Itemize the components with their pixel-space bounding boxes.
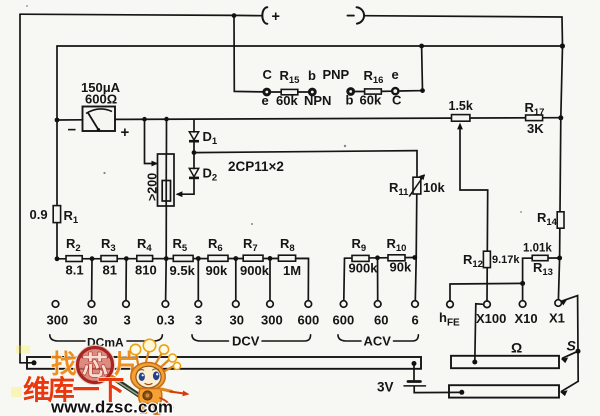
svg-text:R6: R6 bbox=[208, 236, 223, 254]
svg-text:60k: 60k bbox=[276, 93, 298, 108]
svg-text:900k: 900k bbox=[240, 263, 270, 278]
svg-text:R14: R14 bbox=[537, 210, 558, 228]
svg-text:X1: X1 bbox=[549, 311, 565, 326]
svg-text:D2: D2 bbox=[203, 166, 218, 184]
svg-text:1.5k: 1.5k bbox=[449, 99, 473, 113]
svg-text:60: 60 bbox=[374, 313, 388, 328]
svg-text:8.1: 8.1 bbox=[66, 263, 84, 278]
svg-text:hFE: hFE bbox=[439, 310, 460, 329]
svg-text:PNP: PNP bbox=[323, 67, 350, 82]
svg-text:30: 30 bbox=[83, 313, 97, 328]
svg-text:R1: R1 bbox=[64, 208, 79, 226]
svg-text:3V: 3V bbox=[377, 380, 394, 395]
svg-text:X100: X100 bbox=[476, 311, 506, 326]
svg-text:+: + bbox=[121, 124, 130, 141]
svg-text:810: 810 bbox=[135, 263, 157, 278]
svg-text:0.9: 0.9 bbox=[30, 207, 48, 222]
svg-text:R13: R13 bbox=[533, 260, 553, 278]
svg-text:D1: D1 bbox=[203, 129, 218, 147]
svg-text:1M: 1M bbox=[283, 263, 301, 278]
svg-text:81: 81 bbox=[103, 263, 117, 278]
svg-text:R9: R9 bbox=[352, 236, 367, 254]
svg-text:www.dzsc.com: www.dzsc.com bbox=[50, 398, 173, 416]
svg-text:b: b bbox=[346, 93, 354, 108]
svg-text:0.3: 0.3 bbox=[157, 313, 175, 328]
svg-text:+: + bbox=[272, 9, 280, 25]
svg-text:R7: R7 bbox=[243, 236, 258, 254]
svg-text:3: 3 bbox=[124, 313, 131, 328]
svg-text:30: 30 bbox=[230, 313, 244, 328]
svg-text:C: C bbox=[392, 93, 402, 108]
svg-text:e: e bbox=[262, 93, 269, 108]
svg-text:600: 600 bbox=[298, 313, 320, 328]
svg-text:NPN: NPN bbox=[304, 93, 331, 108]
svg-text:R2: R2 bbox=[66, 236, 81, 254]
svg-text:9.17k: 9.17k bbox=[492, 254, 520, 266]
svg-text:2CP11×2: 2CP11×2 bbox=[228, 159, 284, 174]
svg-text:R3: R3 bbox=[101, 236, 116, 254]
svg-text:>200: >200 bbox=[146, 173, 160, 201]
svg-text:R8: R8 bbox=[280, 236, 295, 254]
svg-text:600: 600 bbox=[333, 313, 355, 328]
svg-text:3K: 3K bbox=[527, 121, 544, 136]
svg-text:R12: R12 bbox=[463, 252, 483, 270]
svg-text:10k: 10k bbox=[423, 180, 445, 195]
svg-text:S: S bbox=[567, 338, 577, 354]
svg-text:X10: X10 bbox=[515, 311, 538, 326]
svg-text:300: 300 bbox=[261, 313, 283, 328]
svg-text:60k: 60k bbox=[360, 93, 382, 108]
svg-text:Ω: Ω bbox=[511, 340, 522, 356]
svg-text:e: e bbox=[392, 67, 399, 82]
svg-text:R4: R4 bbox=[137, 236, 152, 254]
svg-text:R10: R10 bbox=[387, 236, 407, 254]
svg-text:b: b bbox=[308, 68, 316, 83]
svg-text:DCV: DCV bbox=[232, 334, 260, 349]
svg-text:ACV: ACV bbox=[364, 334, 392, 349]
svg-text:600Ω: 600Ω bbox=[85, 92, 117, 107]
svg-text:C: C bbox=[263, 67, 273, 82]
svg-text:300: 300 bbox=[47, 313, 69, 328]
svg-text:R15: R15 bbox=[280, 68, 301, 86]
svg-text:900k: 900k bbox=[349, 261, 379, 276]
svg-text:9.5k: 9.5k bbox=[170, 263, 196, 278]
svg-text:R11: R11 bbox=[389, 180, 409, 198]
svg-text:1.01k: 1.01k bbox=[523, 243, 552, 255]
svg-text:R5: R5 bbox=[173, 236, 188, 254]
svg-text:90k: 90k bbox=[390, 260, 412, 275]
svg-text:3: 3 bbox=[195, 313, 202, 328]
svg-text:90k: 90k bbox=[206, 263, 228, 278]
svg-text:R16: R16 bbox=[364, 68, 384, 86]
svg-text:6: 6 bbox=[412, 313, 419, 328]
svg-text:找: 找 bbox=[51, 349, 77, 379]
svg-text:−: − bbox=[68, 122, 77, 139]
